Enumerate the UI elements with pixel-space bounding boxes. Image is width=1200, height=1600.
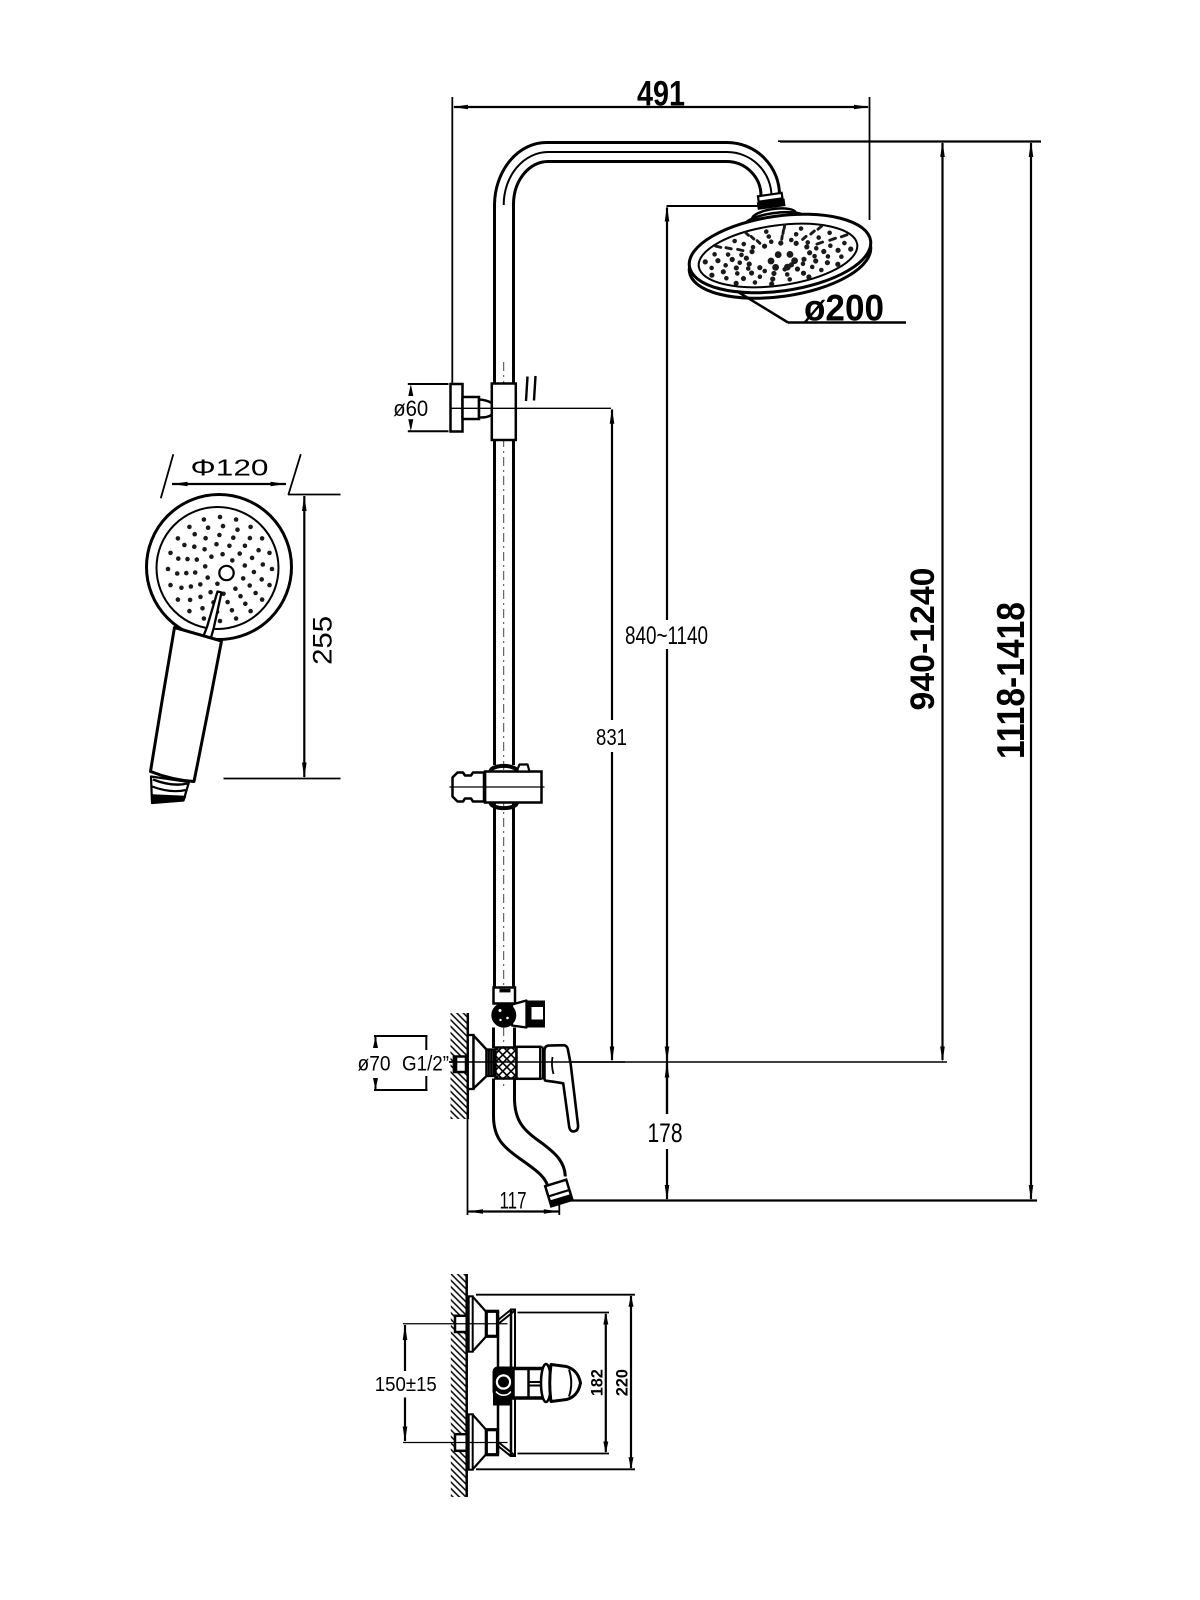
svg-text:840~1140: 840~1140	[625, 622, 708, 650]
svg-text:117: 117	[500, 1188, 527, 1215]
svg-text:Φ120: Φ120	[191, 455, 269, 481]
svg-text:940-1240: 940-1240	[904, 568, 942, 711]
svg-text:G1/2”: G1/2”	[402, 1053, 449, 1076]
svg-text:182: 182	[588, 1369, 606, 1396]
svg-text:ø70: ø70	[358, 1053, 391, 1076]
svg-text:1118-1418: 1118-1418	[990, 602, 1033, 759]
svg-text:491: 491	[637, 75, 685, 114]
svg-text:255: 255	[308, 616, 338, 665]
svg-text:150±15: 150±15	[375, 1373, 437, 1396]
svg-text:220: 220	[614, 1369, 632, 1396]
svg-text:178: 178	[648, 1118, 683, 1148]
svg-text:831: 831	[596, 724, 627, 750]
svg-text:ø200: ø200	[804, 288, 884, 329]
svg-text:ø60: ø60	[393, 396, 428, 421]
